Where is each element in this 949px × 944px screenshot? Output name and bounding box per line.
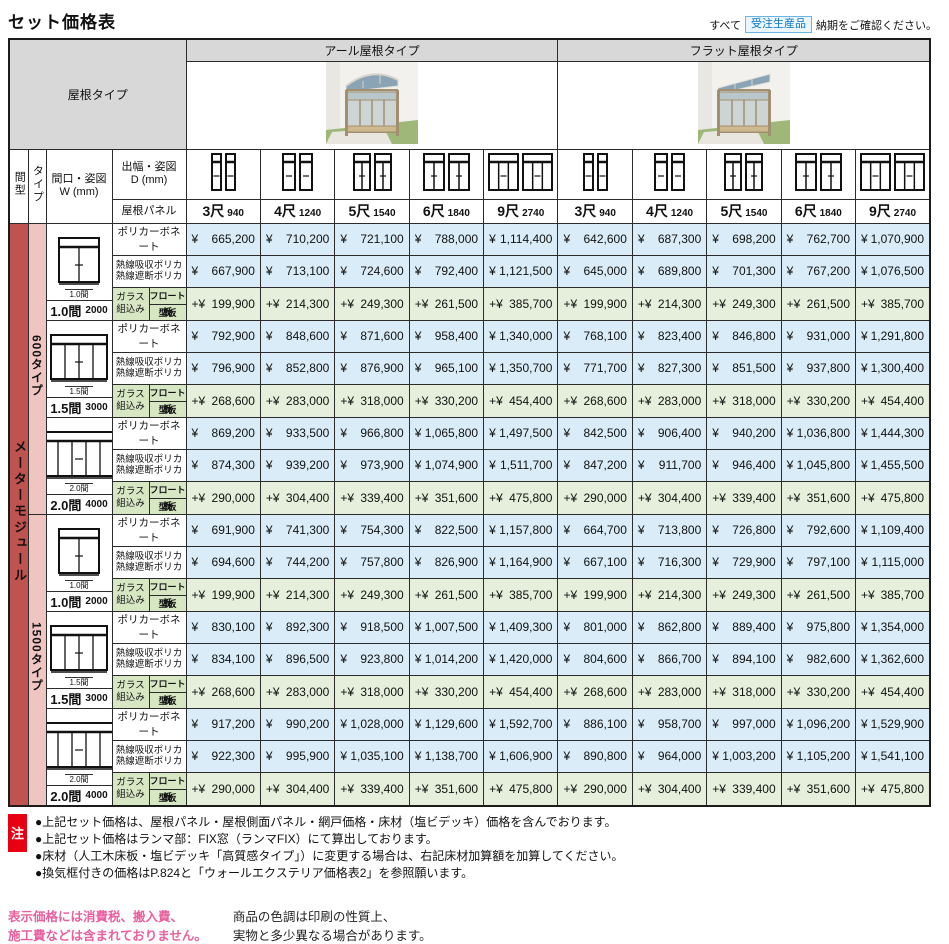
price-cell: ¥823,400 xyxy=(632,320,706,352)
price-cell: ¥894,100 xyxy=(707,643,781,675)
price-cell: ¥906,400 xyxy=(632,417,706,449)
price-cell: +¥214,300 xyxy=(260,287,334,320)
price-cell: +¥290,000 xyxy=(186,481,260,514)
price-cell: +¥261,500 xyxy=(781,287,855,320)
order-note: すべて 受注生産品 納期をご確認ください。 xyxy=(709,16,937,33)
size-label-cell: 3尺940 xyxy=(186,199,260,223)
panel-label-glass: ガラス組込み xyxy=(112,287,149,320)
price-cell: +¥268,600 xyxy=(558,384,632,417)
price-cell: ¥1,354,000 xyxy=(856,611,930,643)
roof-type-corner-label: 屋根タイプ xyxy=(9,39,186,149)
price-cell: ¥1,109,400 xyxy=(856,514,930,546)
price-cell: ¥691,900 xyxy=(186,514,260,546)
price-cell: ¥892,300 xyxy=(260,611,334,643)
size-label-cell: 5尺1540 xyxy=(335,199,409,223)
order-note-prefix: すべて xyxy=(709,17,741,33)
price-cell: ¥757,800 xyxy=(335,546,409,578)
price-cell: +¥268,600 xyxy=(558,675,632,708)
size-icon-cell xyxy=(484,149,558,199)
price-cell: ¥869,200 xyxy=(186,417,260,449)
panel-label-polycarbonate: ポリカーボネート xyxy=(112,514,186,546)
price-cell: +¥249,300 xyxy=(707,287,781,320)
price-cell: +¥475,800 xyxy=(484,772,558,806)
width-dimension-label: 1.0間 xyxy=(65,289,92,299)
price-cell: +¥304,400 xyxy=(260,481,334,514)
size-label-cell: 5尺1540 xyxy=(707,199,781,223)
panel-label-polycarbonate: ポリカーボネート xyxy=(112,708,186,740)
price-cell: ¥694,600 xyxy=(186,546,260,578)
size-label-cell: 6尺1840 xyxy=(781,199,855,223)
price-cell: +¥290,000 xyxy=(558,481,632,514)
price-cell: ¥965,100 xyxy=(409,352,483,384)
price-cell: ¥1,036,800 xyxy=(781,417,855,449)
width-group-cell: 2.0間2.0間4000 xyxy=(46,417,112,514)
price-cell: +¥351,600 xyxy=(781,772,855,806)
price-cell: ¥1,291,800 xyxy=(856,320,930,352)
price-cell: ¥1,070,900 xyxy=(856,223,930,255)
price-cell: ¥1,157,800 xyxy=(484,514,558,546)
size-label-cell: 3尺940 xyxy=(558,199,632,223)
set-price-table-container: 屋根タイプアール屋根タイプフラット屋根タイプ間型タイプ間口・姿図W (mm)出幅… xyxy=(0,38,949,807)
price-cell: ¥1,592,700 xyxy=(484,708,558,740)
price-cell: ¥1,121,500 xyxy=(484,255,558,287)
note-line: ●上記セット価格は、屋根パネル・屋根側面パネル・網戸価格・床材（塩ビデッキ）価格… xyxy=(35,814,624,831)
price-cell: ¥1,541,100 xyxy=(856,740,930,772)
price-cell: ¥724,600 xyxy=(335,255,409,287)
bay-module-label: メーターモジュール xyxy=(9,223,28,806)
price-cell: ¥852,800 xyxy=(260,352,334,384)
page-title: セット価格表 xyxy=(8,8,116,33)
price-cell: +¥304,400 xyxy=(260,772,334,806)
panel-label-glass-types: フロート板型板 xyxy=(149,481,186,514)
price-cell: ¥842,500 xyxy=(558,417,632,449)
price-cell: +¥339,400 xyxy=(707,481,781,514)
price-cell: +¥385,700 xyxy=(856,578,930,611)
price-cell: +¥339,400 xyxy=(335,481,409,514)
title-bar: セット価格表 すべて 受注生産品 納期をご確認ください。 xyxy=(0,0,949,38)
price-cell: +¥304,400 xyxy=(632,481,706,514)
set-price-table: 屋根タイプアール屋根タイプフラット屋根タイプ間型タイプ間口・姿図W (mm)出幅… xyxy=(8,38,931,807)
width-group-cell: 1.5間1.5間3000 xyxy=(46,611,112,708)
note-line: ●換気框付きの価格はP.824と「ウォールエクステリア価格表2」を参照願います。 xyxy=(35,865,624,882)
price-cell: ¥958,400 xyxy=(409,320,483,352)
price-cell: ¥848,600 xyxy=(260,320,334,352)
price-cell: ¥995,900 xyxy=(260,740,334,772)
width-dimension-label: 2.0間 xyxy=(65,774,92,784)
window-elevation-icon xyxy=(353,153,392,191)
price-cell: ¥1,065,800 xyxy=(409,417,483,449)
price-cell: ¥792,600 xyxy=(781,514,855,546)
price-cell: ¥826,900 xyxy=(409,546,483,578)
price-cell: +¥318,000 xyxy=(335,675,409,708)
price-cell: ¥667,100 xyxy=(558,546,632,578)
panel-label-glass: ガラス組込み xyxy=(112,675,149,708)
price-cell: +¥454,400 xyxy=(484,675,558,708)
panel-label-heat-polyca: 熱線吸収ポリカ熱線遮断ポリカ xyxy=(112,352,186,384)
price-cell: +¥475,800 xyxy=(484,481,558,514)
window-elevation-icon xyxy=(211,153,236,191)
disclaimer-line: 施工費などは含まれておりません。 xyxy=(8,927,207,944)
width-elevation-diagram xyxy=(46,721,112,773)
window-elevation-icon xyxy=(423,153,470,191)
price-cell: +¥268,600 xyxy=(186,675,260,708)
price-cell: +¥283,000 xyxy=(632,675,706,708)
price-cell: ¥851,500 xyxy=(707,352,781,384)
price-cell: ¥889,400 xyxy=(707,611,781,643)
window-elevation-icon xyxy=(282,153,313,191)
price-cell: ¥1,129,600 xyxy=(409,708,483,740)
price-cell: ¥822,500 xyxy=(409,514,483,546)
price-cell: +¥283,000 xyxy=(260,384,334,417)
price-cell: +¥454,400 xyxy=(484,384,558,417)
note-line: ●上記セット価格はランマ部：FIX窓（ランマFIX）にて算出しております。 xyxy=(35,831,624,848)
price-cell: +¥318,000 xyxy=(707,675,781,708)
price-cell: +¥199,900 xyxy=(186,287,260,320)
price-cell: +¥214,300 xyxy=(632,287,706,320)
price-cell: +¥385,700 xyxy=(484,287,558,320)
price-cell: +¥351,600 xyxy=(409,772,483,806)
price-cell: ¥973,900 xyxy=(335,449,409,481)
price-cell: ¥792,400 xyxy=(409,255,483,287)
note-marker: 注 xyxy=(8,814,27,852)
width-group-cell: 1.0間1.0間2000 xyxy=(46,514,112,611)
price-cell: ¥1,300,400 xyxy=(856,352,930,384)
price-cell: ¥830,100 xyxy=(186,611,260,643)
print-note-line: 実物と多少異なる場合があります。 xyxy=(233,927,432,944)
roof-type-title-flat: フラット屋根タイプ xyxy=(558,39,930,61)
price-cell: +¥249,300 xyxy=(707,578,781,611)
price-cell: ¥716,300 xyxy=(632,546,706,578)
window-elevation-icon xyxy=(583,153,608,191)
price-cell: ¥1,096,200 xyxy=(781,708,855,740)
price-cell: +¥330,200 xyxy=(781,384,855,417)
panel-label-glass: ガラス組込み xyxy=(112,481,149,514)
arch-roof-product-photo xyxy=(326,62,418,144)
width-group-cell: 2.0間2.0間4000 xyxy=(46,708,112,806)
bay-type-header: 間型 xyxy=(9,149,28,223)
price-cell: ¥741,300 xyxy=(260,514,334,546)
price-cell: ¥713,100 xyxy=(260,255,334,287)
price-cell: +¥318,000 xyxy=(335,384,409,417)
price-cell: ¥933,500 xyxy=(260,417,334,449)
price-cell: ¥1,007,500 xyxy=(409,611,483,643)
price-cell: +¥339,400 xyxy=(707,772,781,806)
price-cell: +¥330,200 xyxy=(409,675,483,708)
price-cell: +¥475,800 xyxy=(856,772,930,806)
price-cell: ¥1,511,700 xyxy=(484,449,558,481)
panel-label-heat-polyca: 熱線吸収ポリカ熱線遮断ポリカ xyxy=(112,643,186,675)
size-label-cell: 4尺1240 xyxy=(632,199,706,223)
price-cell: ¥937,800 xyxy=(781,352,855,384)
footer-section: 表示価格には消費税、搬入費、施工費などは含まれておりません。 商品の色調は印刷の… xyxy=(8,908,949,944)
price-cell: +¥261,500 xyxy=(409,287,483,320)
note-lines: ●上記セット価格は、屋根パネル・屋根側面パネル・網戸価格・床材（塩ビデッキ）価格… xyxy=(35,814,624,882)
price-cell: +¥214,300 xyxy=(260,578,334,611)
price-cell: ¥1,028,000 xyxy=(335,708,409,740)
price-cell: ¥896,500 xyxy=(260,643,334,675)
width-dimension-label: 1.5間 xyxy=(65,386,92,396)
price-cell: ¥754,300 xyxy=(335,514,409,546)
width-group-cell: 1.0間1.0間2000 xyxy=(46,223,112,320)
price-cell: ¥1,350,700 xyxy=(484,352,558,384)
price-cell: ¥667,900 xyxy=(186,255,260,287)
price-cell: ¥1,529,900 xyxy=(856,708,930,740)
price-cell: ¥1,014,200 xyxy=(409,643,483,675)
price-cell: ¥1,340,000 xyxy=(484,320,558,352)
size-icon-cell xyxy=(335,149,409,199)
price-cell: +¥385,700 xyxy=(856,287,930,320)
type-group-label: 600タイプ xyxy=(28,223,46,514)
panel-label-heat-polyca: 熱線吸収ポリカ熱線遮断ポリカ xyxy=(112,255,186,287)
price-cell: ¥1,003,200 xyxy=(707,740,781,772)
order-note-suffix: 納期をご確認ください。 xyxy=(816,17,937,33)
price-cell: ¥768,100 xyxy=(558,320,632,352)
price-cell: +¥385,700 xyxy=(484,578,558,611)
price-cell: ¥871,600 xyxy=(335,320,409,352)
size-icon-cell xyxy=(186,149,260,199)
price-cell: ¥876,900 xyxy=(335,352,409,384)
price-cell: ¥940,200 xyxy=(707,417,781,449)
depth-header: 出幅・姿図D (mm) xyxy=(112,149,186,199)
width-elevation-diagram xyxy=(49,333,109,385)
size-icon-cell xyxy=(558,149,632,199)
price-cell: ¥1,444,300 xyxy=(856,417,930,449)
panel-label-polycarbonate: ポリカーボネート xyxy=(112,320,186,352)
price-cell: +¥351,600 xyxy=(781,481,855,514)
panel-label-polycarbonate: ポリカーボネート xyxy=(112,223,186,255)
price-cell: ¥1,362,600 xyxy=(856,643,930,675)
size-icon-cell xyxy=(632,149,706,199)
panel-label-glass-types: フロート板型板 xyxy=(149,287,186,320)
price-cell: ¥771,700 xyxy=(558,352,632,384)
price-cell: +¥290,000 xyxy=(558,772,632,806)
panel-label-heat-polyca: 熱線吸収ポリカ熱線遮断ポリカ xyxy=(112,740,186,772)
price-cell: +¥290,000 xyxy=(186,772,260,806)
price-cell: ¥1,409,300 xyxy=(484,611,558,643)
price-cell: +¥268,600 xyxy=(186,384,260,417)
panel-label-glass: ガラス組込み xyxy=(112,384,149,417)
width-elevation-diagram xyxy=(57,527,101,579)
price-cell: +¥351,600 xyxy=(409,481,483,514)
panel-label-polycarbonate: ポリカーボネート xyxy=(112,417,186,449)
price-cell: +¥330,200 xyxy=(409,384,483,417)
panel-label-glass-types: フロート板型板 xyxy=(149,384,186,417)
price-cell: +¥454,400 xyxy=(856,675,930,708)
panel-label-glass: ガラス組込み xyxy=(112,772,149,806)
catalog-price-page: セット価格表 すべて 受注生産品 納期をご確認ください。 屋根タイプアール屋根タ… xyxy=(0,0,949,944)
price-cell: +¥261,500 xyxy=(781,578,855,611)
price-cell: ¥689,800 xyxy=(632,255,706,287)
window-elevation-icon xyxy=(724,153,763,191)
price-cell: +¥199,900 xyxy=(558,578,632,611)
width-dimension-label: 1.5間 xyxy=(65,677,92,687)
size-icon-cell xyxy=(409,149,483,199)
price-cell: +¥199,900 xyxy=(186,578,260,611)
price-cell: ¥982,600 xyxy=(781,643,855,675)
price-cell: ¥918,500 xyxy=(335,611,409,643)
size-icon-cell xyxy=(856,149,930,199)
price-cell: ¥990,200 xyxy=(260,708,334,740)
price-cell: ¥1,138,700 xyxy=(409,740,483,772)
price-cell: ¥862,800 xyxy=(632,611,706,643)
window-elevation-icon xyxy=(654,153,685,191)
price-cell: +¥318,000 xyxy=(707,384,781,417)
type-group-label: 1500タイプ xyxy=(28,514,46,806)
price-cell: ¥886,100 xyxy=(558,708,632,740)
panel-label-glass-types: フロート板型板 xyxy=(149,675,186,708)
width-elevation-diagram xyxy=(46,430,112,482)
print-color-note-text: 商品の色調は印刷の性質上、実物と多少異なる場合があります。 xyxy=(233,908,432,944)
type-header: タイプ xyxy=(28,149,46,223)
price-cell: ¥788,000 xyxy=(409,223,483,255)
price-cell: ¥1,606,900 xyxy=(484,740,558,772)
window-elevation-icon xyxy=(488,153,553,191)
price-cell: ¥939,200 xyxy=(260,449,334,481)
size-label-cell: 9尺2740 xyxy=(484,199,558,223)
price-cell: +¥475,800 xyxy=(856,481,930,514)
panel-label-glass-types: フロート板型板 xyxy=(149,578,186,611)
width-dimension-label: 1.0間 xyxy=(65,580,92,590)
width-elevation-diagram xyxy=(57,236,101,288)
size-icon-cell xyxy=(781,149,855,199)
price-cell: ¥698,200 xyxy=(707,223,781,255)
price-cell: ¥710,200 xyxy=(260,223,334,255)
disclaimer-line: 表示価格には消費税、搬入費、 xyxy=(8,908,207,927)
roof-panel-header: 屋根パネル xyxy=(112,199,186,223)
price-cell: ¥664,700 xyxy=(558,514,632,546)
price-cell: +¥249,300 xyxy=(335,578,409,611)
price-cell: ¥834,100 xyxy=(186,643,260,675)
panel-label-glass: ガラス組込み xyxy=(112,578,149,611)
price-cell: +¥283,000 xyxy=(260,675,334,708)
made-to-order-badge: 受注生産品 xyxy=(745,16,812,33)
price-cell: ¥1,497,500 xyxy=(484,417,558,449)
price-cell: ¥847,200 xyxy=(558,449,632,481)
size-icon-cell xyxy=(260,149,334,199)
price-cell: ¥964,000 xyxy=(632,740,706,772)
price-cell: ¥890,800 xyxy=(558,740,632,772)
price-cell: ¥726,800 xyxy=(707,514,781,546)
price-cell: ¥792,900 xyxy=(186,320,260,352)
price-cell: +¥454,400 xyxy=(856,384,930,417)
price-cell: ¥1,074,900 xyxy=(409,449,483,481)
price-cell: ¥642,600 xyxy=(558,223,632,255)
price-cell: ¥1,045,800 xyxy=(781,449,855,481)
arch-roof-photo-cell xyxy=(186,61,558,149)
price-cell: ¥922,300 xyxy=(186,740,260,772)
price-cell: +¥214,300 xyxy=(632,578,706,611)
price-cell: ¥1,076,500 xyxy=(856,255,930,287)
price-cell: ¥1,115,000 xyxy=(856,546,930,578)
panel-label-polycarbonate: ポリカーボネート xyxy=(112,611,186,643)
price-cell: ¥645,000 xyxy=(558,255,632,287)
price-cell: ¥796,900 xyxy=(186,352,260,384)
price-disclaimer-text: 表示価格には消費税、搬入費、施工費などは含まれておりません。 xyxy=(8,908,207,944)
price-cell: ¥997,000 xyxy=(707,708,781,740)
price-cell: ¥917,200 xyxy=(186,708,260,740)
panel-label-glass-types: フロート板型板 xyxy=(149,772,186,806)
price-cell: +¥249,300 xyxy=(335,287,409,320)
price-cell: ¥1,105,200 xyxy=(781,740,855,772)
price-cell: ¥797,100 xyxy=(781,546,855,578)
width-group-cell: 1.5間1.5間3000 xyxy=(46,320,112,417)
size-icon-cell xyxy=(707,149,781,199)
price-cell: ¥804,600 xyxy=(558,643,632,675)
price-cell: ¥1,455,500 xyxy=(856,449,930,481)
price-cell: ¥744,200 xyxy=(260,546,334,578)
price-cell: ¥1,035,100 xyxy=(335,740,409,772)
price-cell: +¥304,400 xyxy=(632,772,706,806)
width-dimension-label: 2.0間 xyxy=(65,483,92,493)
price-cell: ¥931,000 xyxy=(781,320,855,352)
price-cell: +¥339,400 xyxy=(335,772,409,806)
price-cell: ¥729,900 xyxy=(707,546,781,578)
window-elevation-icon xyxy=(860,153,925,191)
price-cell: ¥911,700 xyxy=(632,449,706,481)
size-label-cell: 9尺2740 xyxy=(856,199,930,223)
price-cell: ¥701,300 xyxy=(707,255,781,287)
note-line: ●床材（人工木床板・塩ビデッキ「高質感タイプ」）に変更する場合は、右記床材加算額… xyxy=(35,848,624,865)
price-cell: ¥665,200 xyxy=(186,223,260,255)
size-label-cell: 4尺1240 xyxy=(260,199,334,223)
price-cell: ¥827,300 xyxy=(632,352,706,384)
price-cell: ¥762,700 xyxy=(781,223,855,255)
price-cell: ¥1,420,000 xyxy=(484,643,558,675)
price-cell: +¥199,900 xyxy=(558,287,632,320)
price-cell: ¥946,400 xyxy=(707,449,781,481)
price-cell: ¥1,164,900 xyxy=(484,546,558,578)
price-cell: ¥923,800 xyxy=(335,643,409,675)
price-cell: ¥846,800 xyxy=(707,320,781,352)
price-cell: ¥1,114,400 xyxy=(484,223,558,255)
flat-roof-photo-cell xyxy=(558,61,930,149)
width-header: 間口・姿図W (mm) xyxy=(46,149,112,223)
panel-label-heat-polyca: 熱線吸収ポリカ熱線遮断ポリカ xyxy=(112,546,186,578)
print-note-line: 商品の色調は印刷の性質上、 xyxy=(233,908,432,927)
price-cell: ¥958,700 xyxy=(632,708,706,740)
panel-label-heat-polyca: 熱線吸収ポリカ熱線遮断ポリカ xyxy=(112,449,186,481)
price-cell: +¥261,500 xyxy=(409,578,483,611)
notes-section: 注 ●上記セット価格は、屋根パネル・屋根側面パネル・網戸価格・床材（塩ビデッキ）… xyxy=(8,814,949,882)
flat-roof-product-photo xyxy=(698,62,790,144)
price-cell: ¥866,700 xyxy=(632,643,706,675)
price-cell: ¥966,800 xyxy=(335,417,409,449)
window-elevation-icon xyxy=(795,153,842,191)
price-cell: ¥801,000 xyxy=(558,611,632,643)
price-cell: ¥687,300 xyxy=(632,223,706,255)
price-cell: ¥767,200 xyxy=(781,255,855,287)
price-cell: ¥713,800 xyxy=(632,514,706,546)
price-cell: ¥874,300 xyxy=(186,449,260,481)
width-elevation-diagram xyxy=(49,624,109,676)
roof-type-title-arch: アール屋根タイプ xyxy=(186,39,558,61)
price-cell: ¥721,100 xyxy=(335,223,409,255)
price-cell: +¥283,000 xyxy=(632,384,706,417)
price-cell: +¥330,200 xyxy=(781,675,855,708)
price-cell: ¥975,800 xyxy=(781,611,855,643)
size-label-cell: 6尺1840 xyxy=(409,199,483,223)
